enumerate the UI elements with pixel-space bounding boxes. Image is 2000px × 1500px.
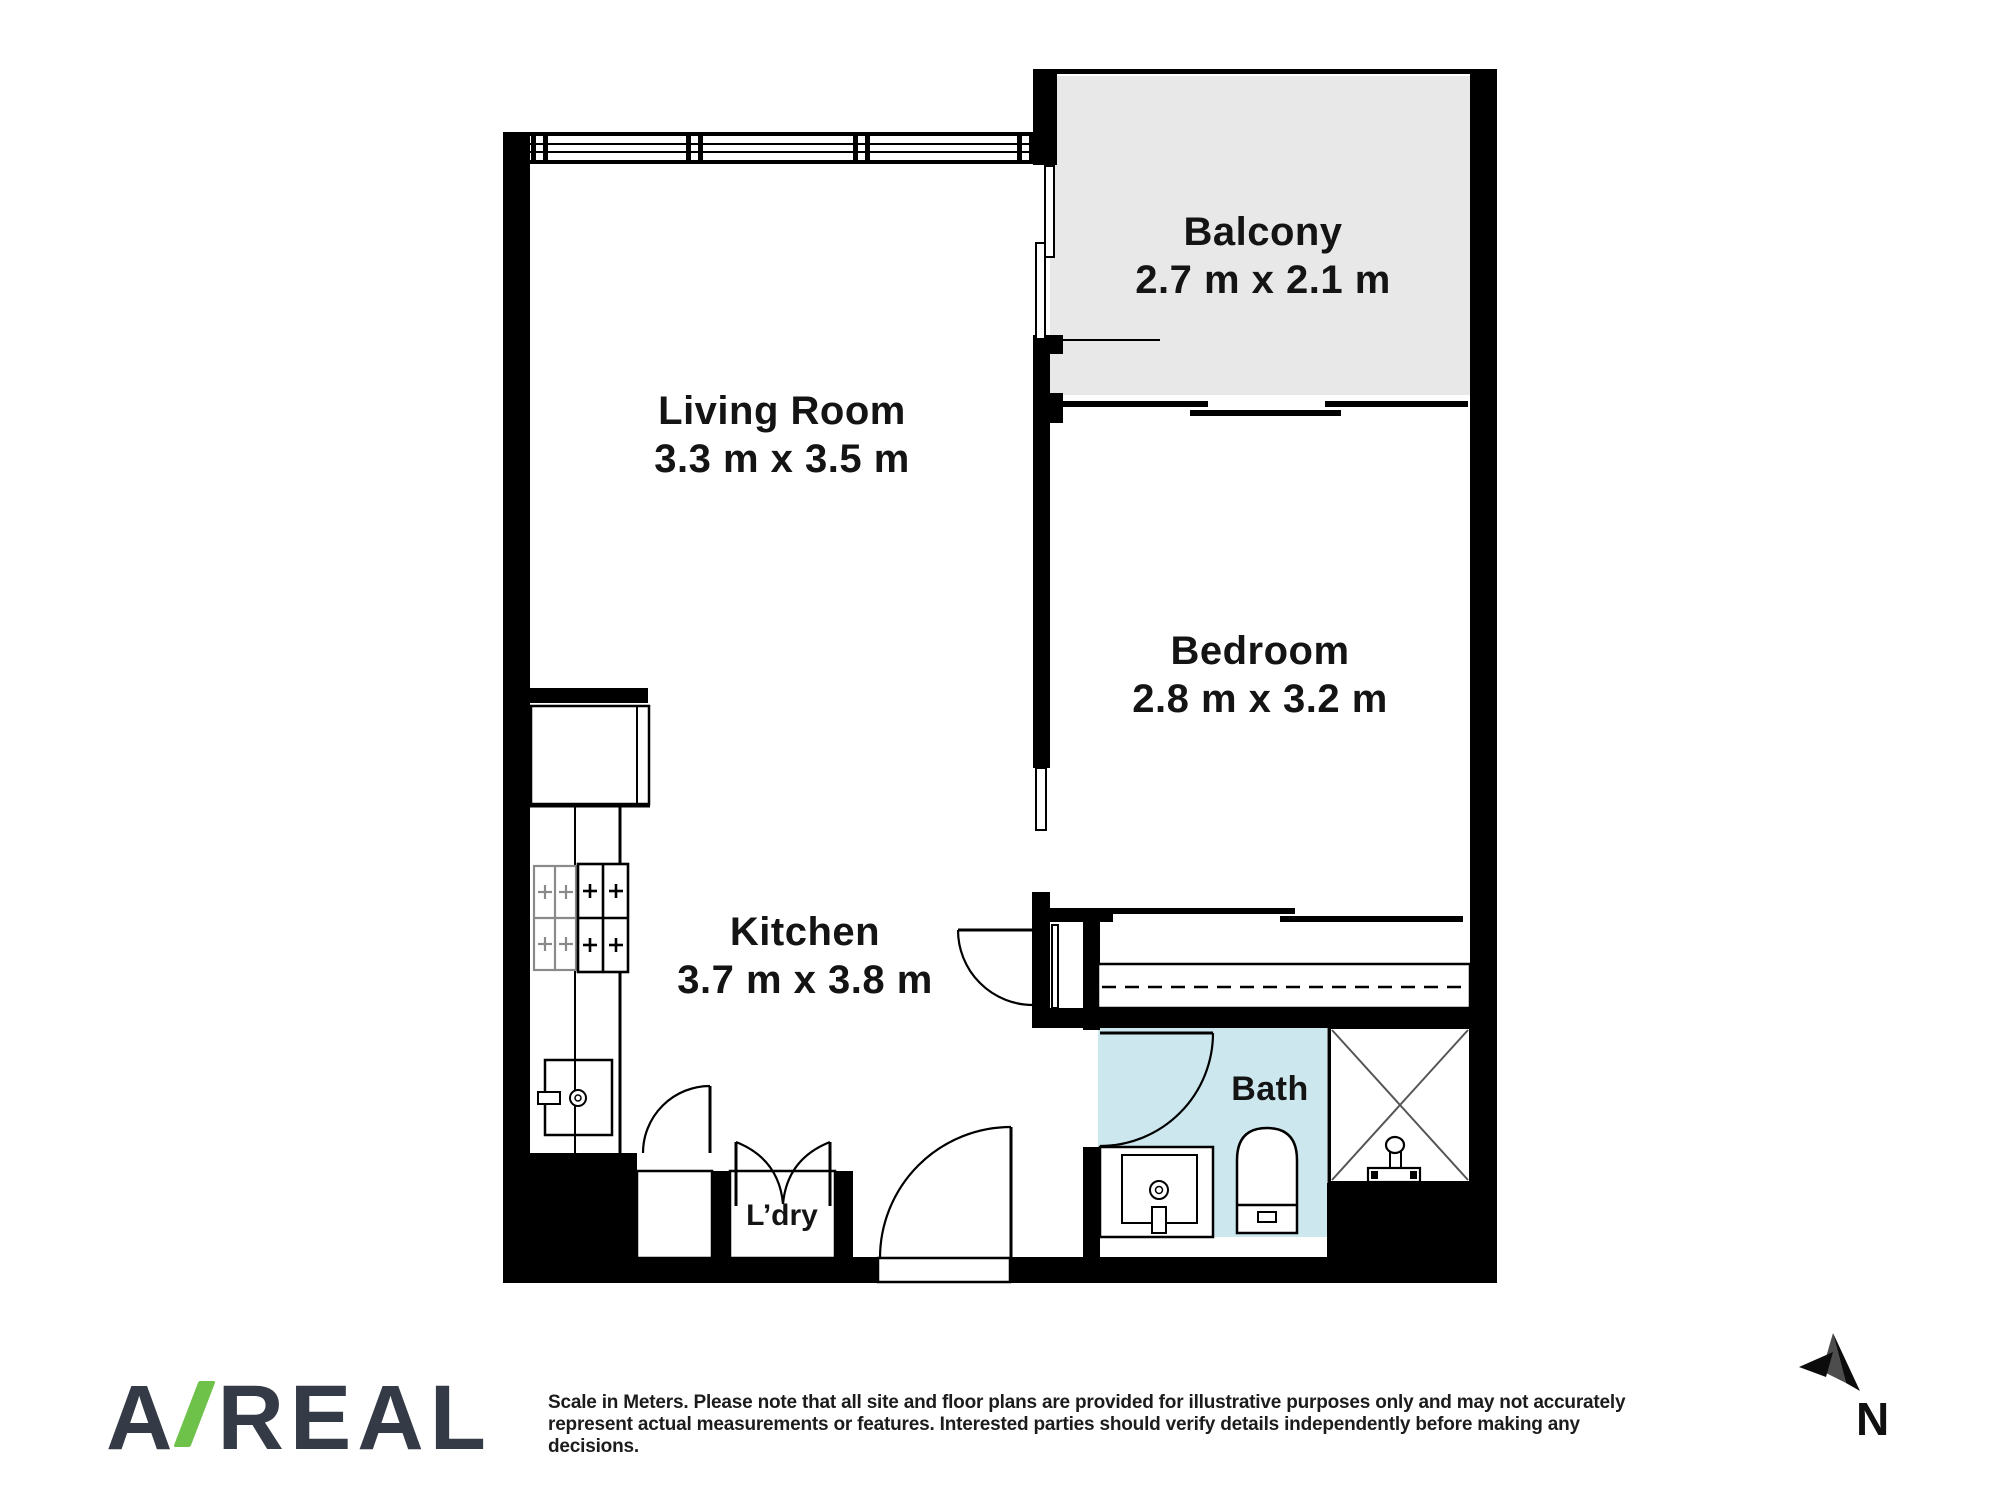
kitchen-fixtures bbox=[530, 706, 650, 1153]
disclaimer-line: Scale in Meters. Please note that all si… bbox=[548, 1392, 1628, 1414]
room-dims: 2.7 m x 2.1 m bbox=[1135, 256, 1391, 304]
floorplan-drawing bbox=[0, 0, 2000, 1500]
closet-door-swing bbox=[643, 1086, 710, 1153]
disclaimer-line: represent actual measurements or feature… bbox=[548, 1414, 1628, 1436]
living-room-windows bbox=[530, 132, 1034, 164]
kitchen-label: Kitchen 3.7 m x 3.8 m bbox=[677, 908, 933, 1004]
room-name: Living Room bbox=[654, 387, 910, 435]
room-dims: 3.3 m x 3.5 m bbox=[654, 435, 910, 483]
room-name: L’dry bbox=[746, 1200, 818, 1232]
logo-letters-real: REAL bbox=[217, 1372, 491, 1464]
logo-letter-a: A bbox=[106, 1372, 178, 1464]
disclaimer-text: Scale in Meters. Please note that all si… bbox=[548, 1392, 1628, 1458]
entry-threshold bbox=[878, 1258, 1010, 1282]
closet-box bbox=[637, 1171, 712, 1258]
balcony-label: Balcony 2.7 m x 2.1 m bbox=[1135, 208, 1391, 304]
fridge bbox=[531, 706, 649, 804]
room-dims: 3.7 m x 3.8 m bbox=[677, 956, 933, 1004]
built-in-robe bbox=[1098, 908, 1470, 1008]
laundry-label: L’dry bbox=[746, 1200, 818, 1232]
vanity-basin bbox=[1100, 1147, 1213, 1237]
floorplan-page: Balcony 2.7 m x 2.1 m Living Room 3.3 m … bbox=[0, 0, 2000, 1500]
toilet bbox=[1237, 1128, 1297, 1233]
cooktop-left bbox=[534, 866, 576, 970]
room-name: Kitchen bbox=[677, 908, 933, 956]
shower bbox=[1329, 1028, 1471, 1183]
cooktop-right bbox=[578, 864, 628, 972]
living-room-label: Living Room 3.3 m x 3.5 m bbox=[654, 387, 910, 483]
entry-door-swing bbox=[880, 1127, 1011, 1258]
north-label: N bbox=[1856, 1396, 1889, 1442]
bedroom-label: Bedroom 2.8 m x 3.2 m bbox=[1132, 627, 1388, 723]
north-arrow-icon bbox=[1799, 1333, 1860, 1391]
bedroom-door-swing bbox=[958, 930, 1033, 1005]
room-name: Balcony bbox=[1135, 208, 1391, 256]
areal-logo: A REAL bbox=[106, 1372, 492, 1464]
room-dims: 2.8 m x 3.2 m bbox=[1132, 675, 1388, 723]
bath-label: Bath bbox=[1231, 1071, 1309, 1107]
bedroom-balcony-sliding-door bbox=[1062, 401, 1468, 416]
room-name: Bedroom bbox=[1132, 627, 1388, 675]
room-name: Bath bbox=[1231, 1071, 1309, 1107]
disclaimer-line: decisions. bbox=[548, 1436, 1628, 1458]
logo-slash-icon bbox=[174, 1381, 216, 1447]
